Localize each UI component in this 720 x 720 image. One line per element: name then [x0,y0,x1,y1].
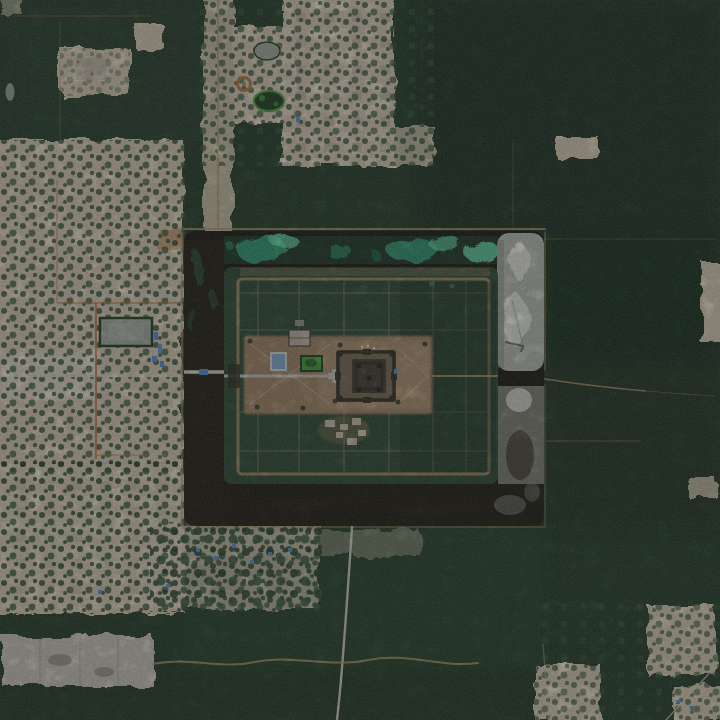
fine-grain-light [0,0,720,720]
photo-grain [0,0,720,720]
satellite-image: Satellite image of the Angkor Wat temple… [0,0,720,720]
satellite-canvas: Satellite image of the Angkor Wat temple… [0,0,720,720]
